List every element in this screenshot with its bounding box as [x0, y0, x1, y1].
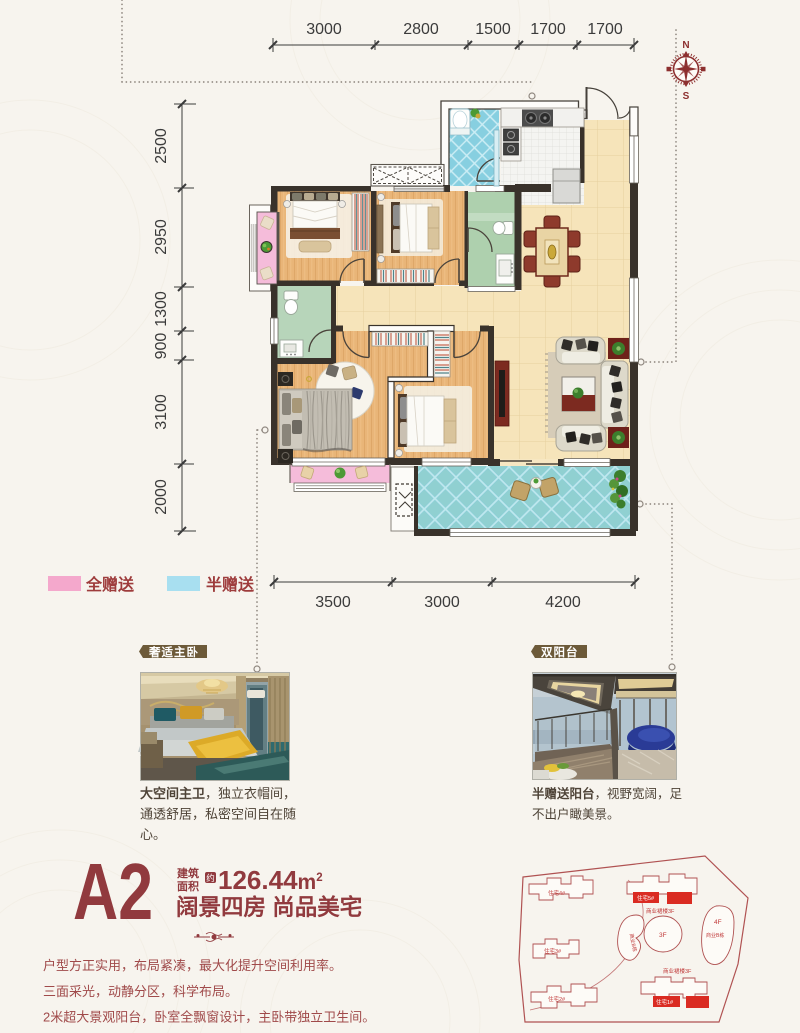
svg-text:半赠送阳台，视野宽阔，足: 半赠送阳台，视野宽阔，足: [532, 786, 683, 801]
svg-text:N: N: [682, 40, 689, 51]
svg-text:3F: 3F: [659, 932, 667, 939]
svg-text:3500: 3500: [315, 594, 351, 611]
svg-text:面积: 面积: [177, 879, 199, 893]
svg-text:3100: 3100: [153, 394, 170, 430]
svg-text:3000: 3000: [424, 594, 460, 611]
svg-text:住宅5#: 住宅5#: [637, 894, 655, 902]
svg-text:1300: 1300: [153, 291, 170, 327]
svg-text:三面采光，动静分区，科学布局。: 三面采光，动静分区，科学布局。: [43, 984, 238, 999]
svg-text:2800: 2800: [403, 21, 439, 38]
svg-text:通透舒居，私密空间自在随: 通透舒居，私密空间自在随: [140, 807, 296, 822]
svg-text:900: 900: [153, 333, 170, 360]
svg-text:奢适主卧: 奢适主卧: [148, 645, 199, 659]
svg-text:2000: 2000: [153, 479, 170, 515]
svg-text:商业裙楼3F: 商业裙楼3F: [663, 967, 692, 975]
svg-text:4F: 4F: [714, 919, 722, 926]
svg-text:住宅2#: 住宅2#: [548, 995, 566, 1003]
svg-text:1700: 1700: [530, 21, 566, 38]
svg-text:双阳台: 双阳台: [540, 645, 579, 659]
svg-text:不出户瞰美景。: 不出户瞰美景。: [532, 807, 620, 822]
svg-text:户型方正实用，布局紧凑，最大化提升空间利用率。: 户型方正实用，布局紧凑，最大化提升空间利用率。: [43, 958, 342, 973]
svg-text:S: S: [683, 91, 690, 102]
svg-text:A2: A2: [73, 847, 153, 936]
svg-text:2950: 2950: [153, 219, 170, 255]
svg-text:4200: 4200: [545, 594, 581, 611]
svg-text:2500: 2500: [153, 128, 170, 164]
svg-text:心。: 心。: [140, 827, 166, 842]
svg-text:1500: 1500: [475, 21, 511, 38]
svg-text:大空间主卫，独立衣帽间，: 大空间主卫，独立衣帽间，: [140, 786, 296, 801]
svg-text:住宅4#: 住宅4#: [548, 889, 566, 897]
svg-text:建筑: 建筑: [177, 866, 199, 880]
svg-text:住宅1#: 住宅1#: [656, 998, 674, 1006]
svg-text:2米超大景观阳台，卧室全飘窗设计，主卧带独立卫生间。: 2米超大景观阳台，卧室全飘窗设计，主卧带独立卫生间。: [43, 1010, 375, 1025]
svg-text:1700: 1700: [587, 21, 623, 38]
svg-text:半赠送: 半赠送: [206, 575, 255, 594]
svg-text:全赠送: 全赠送: [85, 575, 135, 594]
svg-text:阔景四房 尚品美宅: 阔景四房 尚品美宅: [176, 894, 362, 920]
svg-text:约: 约: [206, 873, 215, 883]
svg-text:住宅3#: 住宅3#: [544, 947, 562, 955]
svg-text:商业裙楼3F: 商业裙楼3F: [646, 907, 675, 915]
svg-text:商业B栋: 商业B栋: [706, 932, 724, 939]
svg-text:3000: 3000: [306, 21, 342, 38]
